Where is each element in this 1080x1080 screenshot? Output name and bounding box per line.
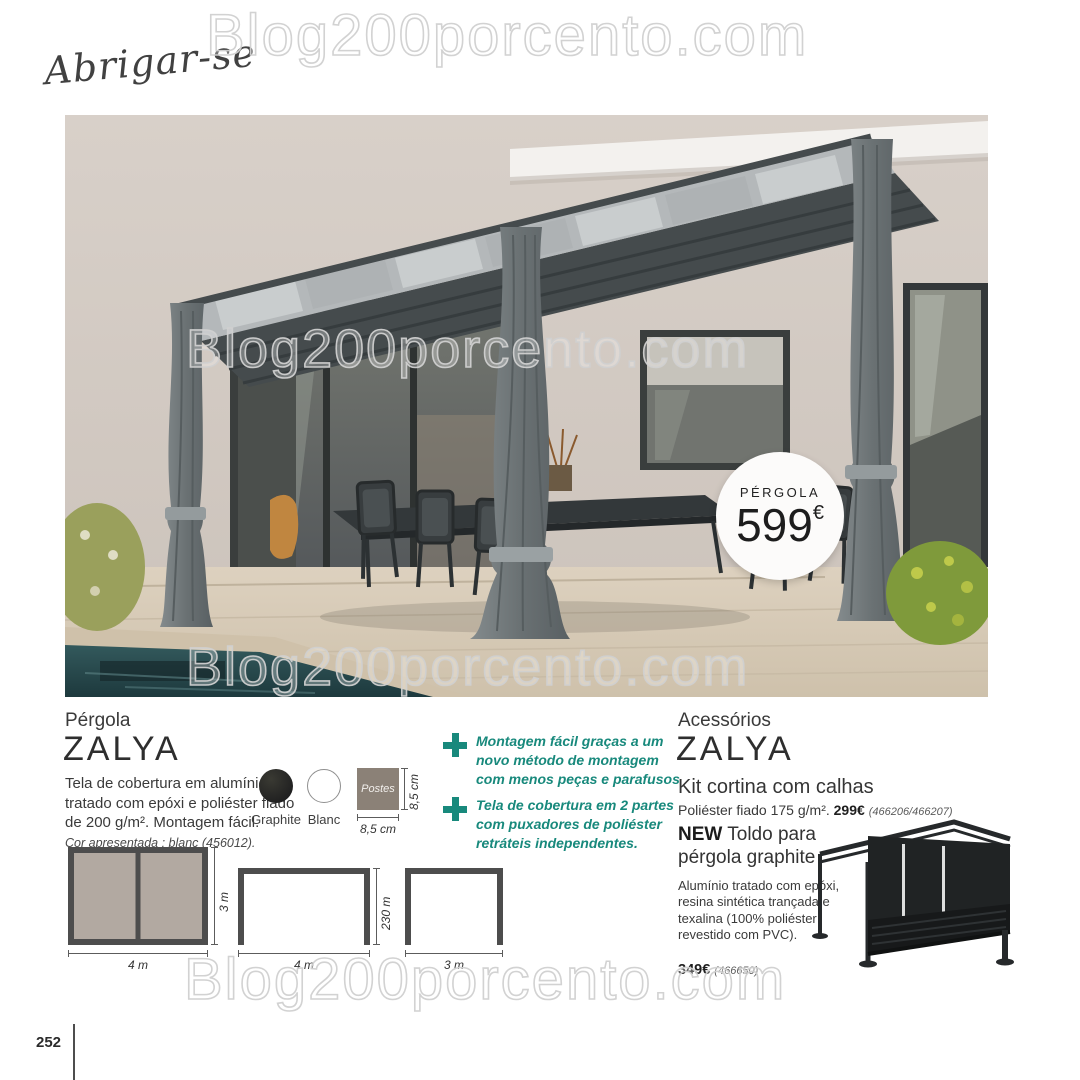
post-height-label: 8,5 cm: [407, 774, 421, 810]
watermark-top: Blog200porcento.com: [206, 2, 808, 69]
post-width-label: 8,5 cm: [350, 822, 406, 836]
toldo-refs: (466650): [714, 965, 758, 977]
catalog-page: Abrigar-se Blog200porcento.com Blog200po…: [0, 0, 1080, 1080]
plus-icon: [443, 733, 467, 757]
badge-product-label: PÉRGOLA: [740, 485, 820, 500]
kit-title: Kit cortina com calhas: [678, 776, 874, 799]
drawing1-width-label: 4 m: [68, 958, 208, 972]
page-number: 252: [36, 1034, 61, 1051]
drawing2-width-label: 4 m: [238, 958, 370, 972]
center-window: [640, 330, 790, 470]
pergola-scene-illustration: [65, 115, 988, 697]
drawing3-width-label: 3 m: [405, 958, 503, 972]
toldo-product-image: [806, 812, 1016, 982]
post-height-dim-line: [404, 768, 405, 810]
drawing2-height-label: 230 m: [379, 897, 393, 930]
product-name: ZALYA: [63, 730, 181, 769]
swatch-blanc-label: Blanc: [289, 812, 359, 827]
feature-2: Tela de cobertura em 2 partes com puxado…: [476, 796, 676, 853]
section-label: Abrigar-se: [42, 31, 257, 93]
drawing2-width-dim: [238, 953, 370, 954]
toldo-price: 349€: [678, 962, 710, 978]
page-number-divider: [73, 1024, 75, 1080]
watermark-bottom: Blog200porcento.com: [184, 946, 786, 1013]
drawing2-height-dim: [376, 868, 377, 945]
product-category: Pérgola: [65, 710, 131, 732]
drawing1-width-dim: [68, 953, 208, 954]
post-swatch: Postes: [357, 768, 399, 810]
new-badge: NEW: [678, 824, 722, 845]
accessories-category: Acessórios: [678, 710, 771, 732]
drawing-front-view: [238, 868, 370, 945]
drawing3-width-dim: [405, 953, 503, 954]
drawing1-height-dim: [214, 847, 215, 945]
drawing-side-view: [405, 868, 503, 945]
drawing-divider: [136, 853, 141, 939]
badge-currency: €: [813, 502, 824, 524]
accessories-name: ZALYA: [676, 730, 794, 769]
feature-1: Montagem fácil graças a um novo método d…: [476, 732, 681, 789]
plus-icon: [443, 797, 467, 821]
price-badge: PÉRGOLA 599€: [716, 452, 844, 580]
swatch-blanc: [307, 769, 341, 803]
towel: [270, 495, 298, 559]
pergola-hero-photo: [65, 115, 988, 697]
post-width-dim-line: [357, 817, 399, 818]
drawing1-height-label: 3 m: [217, 892, 231, 912]
drawing-top-view: [68, 847, 208, 945]
badge-price: 599€: [736, 502, 824, 548]
swatch-graphite: [259, 769, 293, 803]
toldo-price-line: 349€ (466650): [678, 962, 758, 978]
toldo-illustration: [806, 812, 1016, 982]
